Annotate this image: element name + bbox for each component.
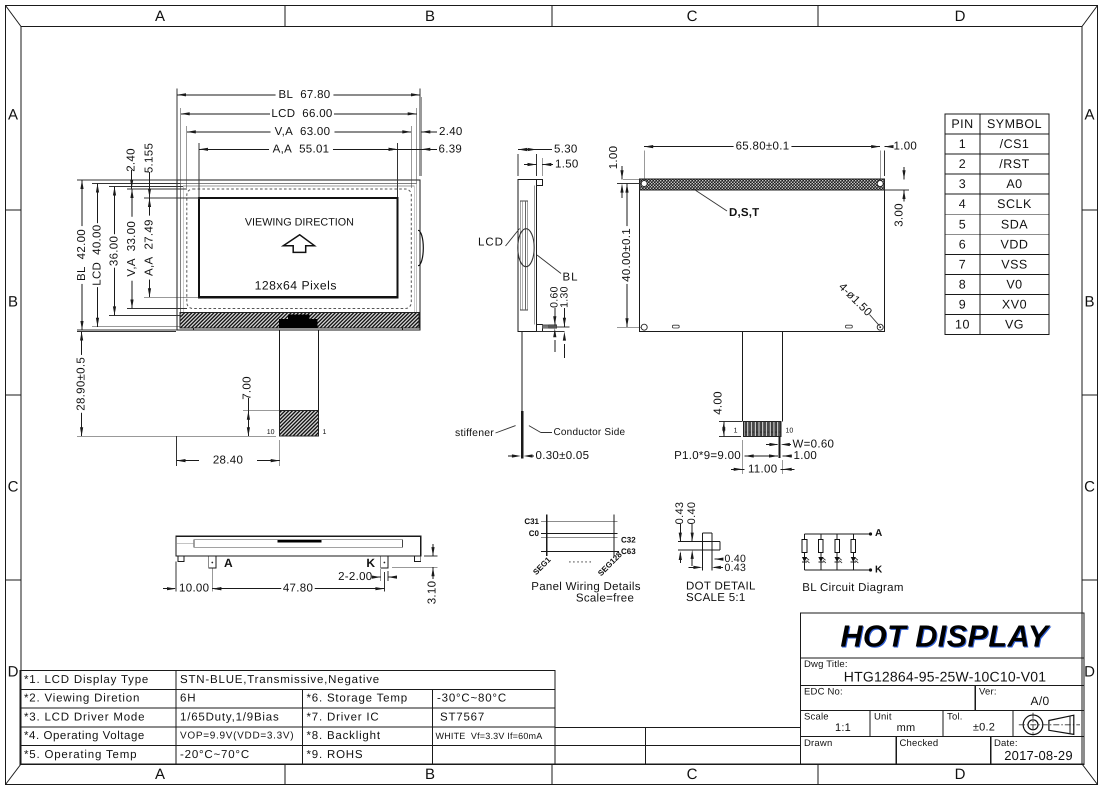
svg-text:Drawn: Drawn [804,738,832,749]
svg-text:4: 4 [959,197,966,211]
svg-text:A: A [1084,107,1094,124]
svg-text:1.00: 1.00 [894,141,918,153]
svg-text:/CS1: /CS1 [1000,137,1030,151]
svg-text:A: A [875,528,882,539]
svg-text:*1. LCD Display Type: *1. LCD Display Type [24,674,149,686]
svg-text:A,A 27.49: A,A 27.49 [144,219,156,276]
svg-text:A/0: A/0 [1031,694,1050,708]
svg-text:......: ...... [568,554,592,566]
svg-text:/RST: /RST [999,157,1029,171]
svg-text:mm: mm [897,722,916,734]
svg-text:65.80±0.1: 65.80±0.1 [736,141,790,153]
svg-text:5: 5 [959,217,966,231]
svg-text:V0: V0 [1006,277,1022,291]
svg-text:*2. Viewing Diretion: *2. Viewing Diretion [24,693,140,705]
svg-text:8: 8 [959,277,966,291]
svg-text:9: 9 [959,297,966,311]
svg-text:Scale=free: Scale=free [576,593,634,605]
svg-text:A: A [155,766,165,783]
svg-text:28.90±0.5: 28.90±0.5 [76,357,88,411]
svg-text:*4. Operating Voltage: *4. Operating Voltage [24,730,145,742]
svg-text:PIN: PIN [951,117,973,131]
svg-text:4.00: 4.00 [713,391,725,415]
svg-text:B: B [8,294,18,311]
svg-text:6H: 6H [180,693,196,705]
svg-text:C: C [687,766,698,783]
svg-text:0.43: 0.43 [725,562,747,574]
svg-text:*3. LCD Driver Mode: *3. LCD Driver Mode [24,711,145,723]
svg-text:W=0.60: W=0.60 [793,439,835,451]
svg-text:*7. Driver IC: *7. Driver IC [307,711,380,723]
svg-text:K: K [875,565,883,576]
svg-text:2017-08-29: 2017-08-29 [1004,748,1073,763]
svg-text:ST7567: ST7567 [440,711,485,723]
svg-text:D: D [8,664,19,681]
svg-text:6: 6 [959,237,966,251]
svg-text:3.10: 3.10 [427,581,439,605]
svg-text:10.00: 10.00 [179,583,209,595]
svg-text:V,A 63.00: V,A 63.00 [275,126,331,138]
svg-text:BL Circuit Diagram: BL Circuit Diagram [802,582,903,594]
svg-text:VOP=9.9V(VDD=3.3V): VOP=9.9V(VDD=3.3V) [180,731,294,742]
svg-text:Scale: Scale [804,712,829,723]
svg-text:VIEWING DIRECTION: VIEWING DIRECTION [245,217,354,229]
svg-text:STN-BLUE,Transmissive,Negative: STN-BLUE,Transmissive,Negative [180,674,380,686]
svg-text:1: 1 [323,429,327,436]
svg-text:Dwg Title:: Dwg Title: [804,659,848,670]
svg-text:D: D [955,8,966,25]
svg-text:Ver:: Ver: [979,687,997,698]
svg-text:HOT DISPLAY: HOT DISPLAY [840,620,1050,654]
svg-text:A: A [155,8,165,25]
svg-text:B: B [425,8,435,25]
svg-text:7: 7 [959,257,966,271]
svg-text:5.30: 5.30 [554,144,578,156]
svg-text:SCLK: SCLK [997,197,1032,211]
svg-text:0.30±0.05: 0.30±0.05 [536,450,590,462]
svg-text:1: 1 [734,428,738,435]
svg-text:1.50: 1.50 [555,159,579,171]
svg-text:LCD: LCD [478,237,504,249]
svg-text:6.39: 6.39 [439,143,463,155]
svg-text:A,A 55.01: A,A 55.01 [273,143,330,155]
svg-text:SDA: SDA [1001,217,1028,231]
svg-text:EDC No:: EDC No: [804,687,843,698]
svg-text:BL: BL [563,272,579,284]
svg-text:A: A [8,107,18,124]
svg-text:10: 10 [267,429,275,436]
svg-text:1:1: 1:1 [835,722,851,734]
svg-text:B: B [1084,294,1094,311]
svg-text:P1.0*9=9.00: P1.0*9=9.00 [674,450,741,462]
svg-text:BL 42.00: BL 42.00 [76,229,88,281]
svg-text:-30°C~80°C: -30°C~80°C [437,693,507,705]
svg-text:10: 10 [955,317,970,331]
svg-text:stiffener: stiffener [455,427,494,439]
svg-text:47.80: 47.80 [283,583,313,595]
svg-text:Unit: Unit [874,712,892,723]
svg-text:D,S,T: D,S,T [729,207,759,219]
svg-text:7.00: 7.00 [242,376,254,400]
svg-text:28.40: 28.40 [213,455,243,467]
svg-text:K: K [366,556,375,570]
svg-text:C31: C31 [524,517,539,526]
svg-text:2.40: 2.40 [126,148,138,172]
svg-text:XV0: XV0 [1002,297,1027,311]
svg-text:10: 10 [786,428,794,435]
svg-text:C0: C0 [529,529,540,538]
svg-text:1: 1 [959,137,966,151]
svg-text:Tol.: Tol. [947,712,963,723]
svg-text:Panel Wiring Details: Panel Wiring Details [531,581,641,593]
svg-text:VDD: VDD [1001,237,1029,251]
svg-text:C32: C32 [621,536,636,545]
svg-text:WHITE Vf=3.3V If=60mA: WHITE Vf=3.3V If=60mA [436,731,543,741]
svg-text:36.00: 36.00 [109,236,121,266]
svg-text:3: 3 [959,177,966,191]
svg-text:A0: A0 [1006,177,1022,191]
svg-text:C: C [1084,479,1095,496]
svg-text:VSS: VSS [1001,257,1028,271]
svg-text:HTG12864-95-25W-10C10-V01: HTG12864-95-25W-10C10-V01 [844,669,1046,685]
svg-text:*8. Backlight: *8. Backlight [307,730,381,742]
svg-text:128x64 Pixels: 128x64 Pixels [255,279,337,293]
svg-text:SYMBOL: SYMBOL [987,117,1042,131]
svg-text:0.43: 0.43 [674,502,686,525]
svg-text:*5. Operating Temp: *5. Operating Temp [24,749,137,761]
svg-text:2.40: 2.40 [439,126,463,138]
svg-text:-20°C~70°C: -20°C~70°C [180,749,250,761]
svg-text:B: B [425,766,435,783]
svg-text:V,A 33.00: V,A 33.00 [126,221,138,277]
svg-text:2: 2 [959,157,966,171]
svg-text:*6. Storage Temp: *6. Storage Temp [307,693,408,705]
svg-text:Checked: Checked [900,738,939,749]
svg-text:C63: C63 [621,547,636,556]
svg-text:11.00: 11.00 [748,463,777,475]
svg-text:0.40: 0.40 [686,502,698,525]
svg-text:1.00: 1.00 [794,450,818,462]
svg-text:BL 67.80: BL 67.80 [279,89,331,101]
svg-text:1/65Duty,1/9Bias: 1/65Duty,1/9Bias [180,711,280,723]
svg-text:SCALE 5:1: SCALE 5:1 [686,592,746,604]
svg-text:40.00±0.1: 40.00±0.1 [621,228,633,282]
svg-text:5.155: 5.155 [144,143,156,173]
svg-text:DOT DETAIL: DOT DETAIL [686,581,756,593]
svg-text:1.00: 1.00 [608,146,620,170]
svg-text:LCD 40.00: LCD 40.00 [92,225,104,286]
svg-text:LCD 66.00: LCD 66.00 [271,108,332,120]
svg-text:VG: VG [1005,317,1024,331]
svg-text:D: D [955,766,966,783]
svg-text:C: C [8,479,19,496]
svg-text:A: A [224,556,233,570]
svg-text:3.00: 3.00 [894,203,906,227]
svg-text:*9. ROHS: *9. ROHS [307,749,364,761]
svg-text:±0.2: ±0.2 [973,722,995,734]
svg-text:1.30: 1.30 [559,286,571,308]
svg-text:Conductor Side: Conductor Side [554,427,626,438]
svg-text:D: D [1084,664,1095,681]
svg-text:C: C [687,8,698,25]
svg-text:2-2.00: 2-2.00 [338,571,372,583]
